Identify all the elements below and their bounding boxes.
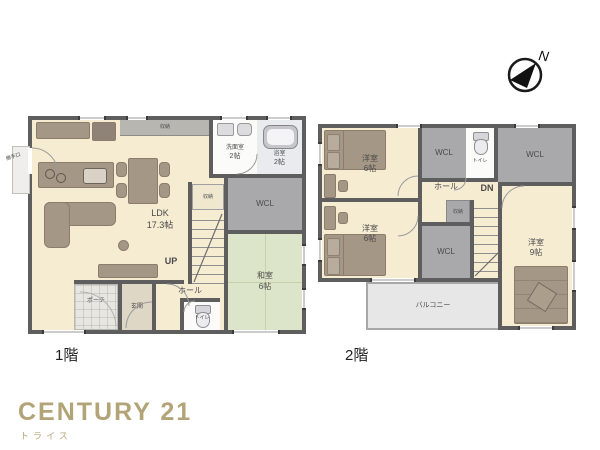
desk-chair — [338, 212, 348, 224]
window — [220, 116, 248, 120]
bedroom-e-label: 洋室 — [528, 238, 544, 247]
blanket-fold — [527, 282, 557, 312]
company-name: トライス — [20, 429, 72, 442]
wcl-2f-middle-label: WCL — [437, 247, 455, 258]
toilet-2f-label: トイレ — [472, 158, 487, 164]
balcony-door — [370, 278, 416, 282]
floor1-caption: 1階 — [55, 344, 78, 365]
compass-icon: N — [500, 42, 556, 100]
stairs-dn-label: DN — [481, 183, 494, 193]
window — [572, 206, 576, 230]
bedroom-e-label-wrap: 洋室 9帖 — [514, 238, 558, 259]
hall-1f-label-wrap: ホール — [164, 286, 216, 296]
window — [396, 124, 422, 128]
window — [266, 116, 292, 120]
wcl-2f-right-label: WCL — [526, 150, 544, 161]
stairs-down — [474, 200, 500, 278]
wcl-2f-left-label: WCL — [435, 148, 453, 159]
floor2-caption: 2階 — [345, 344, 368, 365]
desk-chair — [338, 180, 348, 192]
closet-stairs-2f: 収納 — [446, 200, 470, 224]
wall-segment — [422, 222, 470, 226]
desk — [324, 174, 336, 198]
window — [318, 142, 322, 166]
century21-logo: CENTURY 21 — [18, 398, 192, 427]
room-wcl-2f-middle: WCL — [422, 226, 470, 278]
bedroom-sw-label-wrap: 洋室 6帖 — [348, 224, 392, 245]
bedroom-nw-size: 6帖 — [364, 164, 376, 173]
window — [514, 124, 540, 128]
window — [232, 330, 280, 334]
bedroom-sw-size: 6帖 — [364, 234, 376, 243]
closet-stairs-2f-label: 収納 — [453, 209, 463, 216]
wall-segment — [498, 182, 574, 186]
bedroom-sw-label: 洋室 — [362, 224, 378, 233]
stairs-up-label: UP — [165, 256, 178, 266]
balcony: バルコニー — [366, 282, 500, 330]
floor1-plan: 洗面室 2帖 浴室 2帖 WCL 和室 6帖 — [28, 116, 306, 334]
ldk-label: LDK — [151, 208, 169, 218]
ldk-size: 17.3帖 — [147, 220, 174, 230]
compass-north-label: N — [538, 47, 551, 64]
window — [572, 260, 576, 292]
room-wcl-2f-left: WCL — [422, 128, 466, 178]
floor2-plan: WCL トイレ WCL WCL 収納 バルコニー — [318, 120, 580, 332]
window — [126, 116, 148, 120]
window — [318, 238, 322, 262]
bedroom-nw-label: 洋室 — [362, 154, 378, 163]
window — [42, 330, 86, 334]
floorplan-page: N 洗面室 2帖 浴室 2帖 WCL — [0, 0, 600, 450]
window — [518, 326, 554, 330]
window — [302, 288, 306, 310]
hall-2f-label-wrap: ホール — [422, 182, 470, 192]
wall-segment — [418, 128, 422, 278]
room-toilet-2f: トイレ — [466, 128, 494, 178]
window — [302, 244, 306, 266]
hall-1f-label: ホール — [178, 286, 202, 295]
desk — [324, 206, 336, 230]
bedroom-e-size: 9帖 — [530, 248, 542, 257]
window — [78, 116, 106, 120]
wall-segment — [494, 128, 498, 182]
bedroom-nw-label-wrap: 洋室 6帖 — [348, 154, 392, 175]
balcony-label: バルコニー — [416, 301, 451, 310]
dn-label-wrap: DN — [474, 183, 500, 195]
bed — [514, 266, 568, 324]
up-label-wrap: UP — [158, 256, 184, 268]
ldk-label-wrap: LDK 17.3帖 — [130, 208, 190, 231]
wall-segment — [498, 186, 502, 330]
hall-2f-label: ホール — [434, 182, 458, 191]
wall-segment — [470, 200, 474, 278]
wall-segment — [322, 198, 418, 202]
backdoor-opening — [28, 148, 32, 174]
room-wcl-2f-right: WCL — [498, 128, 572, 182]
